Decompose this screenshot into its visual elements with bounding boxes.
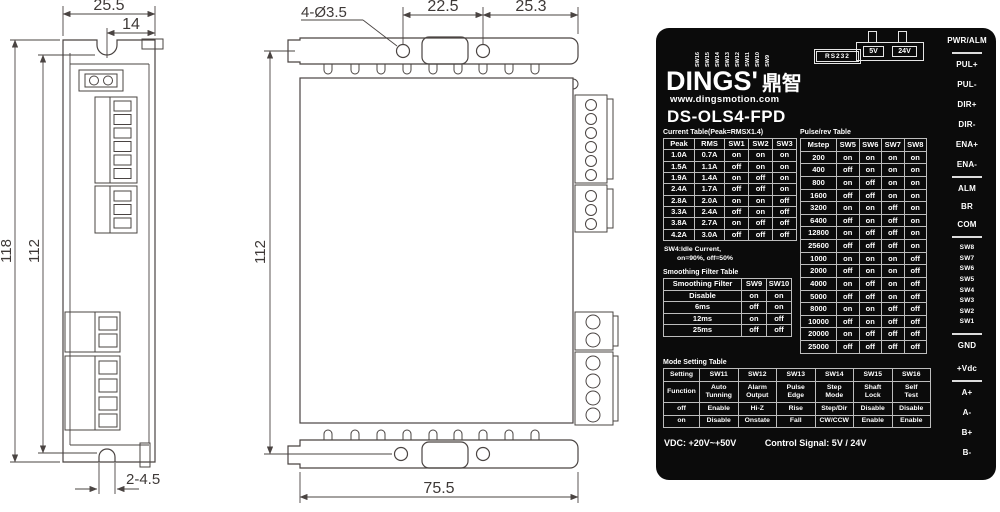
- table-cell: on: [773, 173, 797, 184]
- table-cell: 200: [801, 151, 837, 164]
- table-cell: on: [882, 176, 905, 189]
- table-cell: Mstep: [801, 139, 837, 152]
- table-cell: Function: [664, 382, 700, 403]
- table-cell: off: [904, 303, 927, 316]
- terminal-label: ENA+: [956, 140, 978, 150]
- table-cell: 1600: [801, 189, 837, 202]
- dip-switch-label: SW13: [726, 52, 732, 67]
- table-cell: off: [773, 218, 797, 229]
- table-cell: 25600: [801, 240, 837, 253]
- table-cell: 6ms: [664, 302, 742, 314]
- table-row: offEnableHi-ZRiseStep/DirDisableDisable: [664, 403, 931, 415]
- dim-side-height-label: 112: [252, 240, 269, 264]
- table-row: 2000offononoff: [801, 265, 927, 278]
- table-cell: SW14: [815, 369, 854, 382]
- table-cell: 1000: [801, 252, 837, 265]
- table-cell: 1.7A: [695, 184, 725, 195]
- table-cell: on: [904, 164, 927, 177]
- dip-switch-side-label: SW6: [960, 265, 975, 273]
- table-cell: on: [767, 302, 792, 314]
- table-cell: on: [725, 173, 749, 184]
- table-cell: off: [767, 313, 792, 325]
- power-led-label-group: PWR/ALM: [938, 36, 996, 46]
- table-cell: SW9: [742, 279, 767, 291]
- rs232-text: RS232: [816, 51, 859, 62]
- table-cell: off: [859, 277, 882, 290]
- table-cell: off: [859, 176, 882, 189]
- current-table-block: Current Table(Peak=RMSX1.4) PeakRMSSW1SW…: [663, 129, 797, 241]
- front-view-drawing: 25.5 14 118 112 2-4.5: [0, 0, 235, 512]
- table-cell: SW6: [859, 139, 882, 152]
- table-cell: off: [837, 240, 860, 253]
- table-cell: on: [837, 328, 860, 341]
- table-cell: 25ms: [664, 325, 742, 337]
- table-cell: SW11: [700, 369, 739, 382]
- table-cell: on: [859, 315, 882, 328]
- front-body-outline: [63, 39, 163, 467]
- table-cell: Pulse Edge: [777, 382, 816, 403]
- table-cell: on: [773, 184, 797, 195]
- table-row: FunctionAuto TunningAlarm OutputPulse Ed…: [664, 382, 931, 403]
- table-cell: on: [664, 415, 700, 427]
- table-cell: Disable: [700, 415, 739, 427]
- dim-side-width-label: 75.5: [423, 480, 454, 497]
- table-cell: Onstate: [738, 415, 777, 427]
- table-cell: on: [837, 303, 860, 316]
- table-cell: SW1: [725, 139, 749, 150]
- dip-switch-side-label: SW3: [960, 297, 975, 305]
- table-cell: on: [904, 240, 927, 253]
- table-cell: 2.4A: [664, 184, 695, 195]
- table-cell: Disable: [854, 403, 893, 415]
- table-cell: on: [742, 313, 767, 325]
- side-view-drawing: 4-Ø3.5 22.5 25.3 112 75.5: [235, 0, 655, 512]
- table-cell: on: [837, 151, 860, 164]
- table-row: Smoothing FilterSW9SW10: [664, 279, 792, 291]
- table-cell: SW7: [882, 139, 905, 152]
- table-cell: on: [859, 202, 882, 215]
- table-cell: off: [742, 302, 767, 314]
- terminal-label: PUL-: [957, 80, 976, 90]
- table-cell: off: [749, 218, 773, 229]
- table-cell: off: [859, 240, 882, 253]
- table-cell: off: [773, 229, 797, 240]
- dip-switch-label: SW14: [716, 52, 722, 67]
- control-terminal-group: PUL+PUL-DIR+DIR-ENA+ENA-: [938, 60, 996, 170]
- table-cell: off: [882, 240, 905, 253]
- table-cell: on: [725, 150, 749, 161]
- table-cell: off: [882, 328, 905, 341]
- table-cell: Disable: [892, 403, 931, 415]
- table-cell: off: [837, 214, 860, 227]
- terminal-label: ENA-: [957, 160, 977, 170]
- table-cell: off: [859, 328, 882, 341]
- table-cell: 3.8A: [664, 218, 695, 229]
- table-cell: SW8: [904, 139, 927, 152]
- pulse-table-title: Pulse/rev Table: [800, 129, 927, 136]
- table-row: 1600offoffonon: [801, 189, 927, 202]
- terminal-label: DIR+: [957, 100, 976, 110]
- table-cell: Shaft Lock: [854, 382, 893, 403]
- table-row: 1.0A0.7Aononon: [664, 150, 797, 161]
- table-cell: Enable: [892, 415, 931, 427]
- rs232-port-label: RS232: [814, 49, 861, 64]
- table-cell: off: [725, 229, 749, 240]
- model-number: DS-OLS4-FPD: [667, 107, 786, 127]
- mode-table-title: Mode Setting Table: [663, 359, 931, 366]
- table-row: 3.8A2.7Aonoffoff: [664, 218, 797, 229]
- dip-switch-labels: SW16SW15SW14SW13SW12SW11SW10SW9: [696, 35, 772, 67]
- power-spec-footer: VDC: +20V~+50V Control Signal: 5V / 24V: [664, 438, 892, 448]
- table-row: 25msoffoff: [664, 325, 792, 337]
- table-cell: on: [725, 218, 749, 229]
- table-cell: off: [725, 184, 749, 195]
- table-cell: Hi-Z: [738, 403, 777, 415]
- table-cell: on: [773, 150, 797, 161]
- table-cell: 4.2A: [664, 229, 695, 240]
- table-cell: on: [904, 151, 927, 164]
- table-row: 10000offonoffoff: [801, 315, 927, 328]
- table-cell: off: [882, 202, 905, 215]
- motor-terminal-group: A+A-B+B-: [938, 388, 996, 458]
- table-cell: off: [664, 403, 700, 415]
- table-row: 5000offoffonoff: [801, 290, 927, 303]
- table-cell: 5000: [801, 290, 837, 303]
- table-cell: on: [749, 195, 773, 206]
- terminal-label: A+: [962, 388, 973, 398]
- smoothing-table-title: Smoothing Filter Table: [663, 269, 792, 276]
- terminal-label: GND: [958, 341, 976, 351]
- brand-name: DINGS': [666, 66, 758, 97]
- table-cell: on: [882, 164, 905, 177]
- table-row: 200onononon: [801, 151, 927, 164]
- table-cell: SW12: [738, 369, 777, 382]
- table-cell: 10000: [801, 315, 837, 328]
- terminal-label: B-: [963, 448, 972, 458]
- table-row: 6400offonoffon: [801, 214, 927, 227]
- side-body-outline: [288, 37, 578, 468]
- table-cell: 3200: [801, 202, 837, 215]
- terminal-label: ALM: [958, 184, 976, 194]
- table-cell: on: [749, 207, 773, 218]
- divider: [952, 380, 982, 382]
- table-cell: Self Test: [892, 382, 931, 403]
- table-cell: SW5: [837, 139, 860, 152]
- table-cell: on: [749, 161, 773, 172]
- dim-height-inner-label: 112: [26, 239, 43, 263]
- table-cell: on: [859, 164, 882, 177]
- table-row: 25600offoffoffon: [801, 240, 927, 253]
- signal-voltage-jumper: 5V 24V: [856, 31, 924, 61]
- table-cell: RMS: [695, 139, 725, 150]
- dip-switch-side-label: SW1: [960, 318, 975, 326]
- terminal-label: COM: [957, 220, 976, 230]
- brand-logo: DINGS' 鼎智: [666, 66, 802, 97]
- table-cell: on: [859, 303, 882, 316]
- table-cell: Auto Tunning: [700, 382, 739, 403]
- table-cell: off: [749, 173, 773, 184]
- idle-current-note: SW4:Idle Current, on=90%, off=50%: [664, 245, 733, 263]
- dip-switch-side-label: SW5: [960, 276, 975, 284]
- table-cell: off: [749, 229, 773, 240]
- table-cell: off: [882, 315, 905, 328]
- table-cell: on: [882, 277, 905, 290]
- dim-notch-label: 14: [122, 16, 140, 33]
- table-cell: 1.5A: [664, 161, 695, 172]
- table-cell: 12800: [801, 227, 837, 240]
- supply-terminal-group: GND+Vdc: [938, 341, 996, 374]
- terminal-label: PWR/ALM: [947, 36, 987, 46]
- table-row: 1.9A1.4Aonoffon: [664, 173, 797, 184]
- table-row: 6msoffon: [664, 302, 792, 314]
- table-cell: off: [882, 341, 905, 354]
- table-cell: 20000: [801, 328, 837, 341]
- current-table-title: Current Table(Peak=RMSX1.4): [663, 129, 797, 136]
- table-cell: 25000: [801, 341, 837, 354]
- dip-switch-label: SW10: [756, 52, 762, 67]
- table-row: onDisableOnstateFallCW/CCWEnableEnable: [664, 415, 931, 427]
- table-cell: 1.9A: [664, 173, 695, 184]
- table-cell: SW13: [777, 369, 816, 382]
- table-cell: 3.3A: [664, 207, 695, 218]
- dim-height-outer-label: 118: [0, 239, 15, 263]
- table-row: MstepSW5SW6SW7SW8: [801, 139, 927, 152]
- table-cell: off: [742, 325, 767, 337]
- table-cell: off: [859, 189, 882, 202]
- divider: [952, 52, 982, 54]
- table-cell: 6400: [801, 214, 837, 227]
- dip-switch-side-label: SW2: [960, 308, 975, 316]
- table-cell: on: [773, 161, 797, 172]
- table-cell: 2.7A: [695, 218, 725, 229]
- table-cell: on: [904, 202, 927, 215]
- table-cell: CW/CCW: [815, 415, 854, 427]
- table-cell: off: [904, 265, 927, 278]
- table-cell: 2.0A: [695, 195, 725, 206]
- table-row: 12msonoff: [664, 313, 792, 325]
- table-cell: Fall: [777, 415, 816, 427]
- table-cell: off: [773, 207, 797, 218]
- dim-slot-label: 2-4.5: [126, 471, 160, 488]
- dip-switch-side-label: SW7: [960, 255, 975, 263]
- side-connectors: [575, 95, 618, 425]
- mode-table-block: Mode Setting Table SettingSW11SW12SW13SW…: [663, 359, 931, 428]
- dim-holes-label: 4-Ø3.5: [301, 4, 347, 21]
- table-cell: on: [882, 252, 905, 265]
- table-row: 400offononon: [801, 164, 927, 177]
- table-cell: 2.8A: [664, 195, 695, 206]
- table-cell: off: [904, 341, 927, 354]
- table-cell: 400: [801, 164, 837, 177]
- table-cell: Setting: [664, 369, 700, 382]
- divider: [952, 333, 982, 335]
- table-cell: on: [859, 151, 882, 164]
- table-row: SettingSW11SW12SW13SW14SW15SW16: [664, 369, 931, 382]
- table-cell: on: [859, 252, 882, 265]
- table-cell: on: [837, 176, 860, 189]
- dim-hole-spacing-label: 22.5: [427, 0, 458, 15]
- table-cell: 800: [801, 176, 837, 189]
- table-cell: on: [837, 227, 860, 240]
- table-cell: Smoothing Filter: [664, 279, 742, 291]
- brand-website: www.dingsmotion.com: [670, 94, 779, 105]
- table-cell: 2000: [801, 265, 837, 278]
- table-cell: 4000: [801, 277, 837, 290]
- table-cell: on: [882, 151, 905, 164]
- table-cell: off: [859, 227, 882, 240]
- table-cell: on: [767, 290, 792, 302]
- table-row: 25000offoffoffoff: [801, 341, 927, 354]
- table-cell: SW10: [767, 279, 792, 291]
- table-cell: off: [837, 290, 860, 303]
- table-cell: Enable: [854, 415, 893, 427]
- table-cell: Peak: [664, 139, 695, 150]
- table-cell: Step Mode: [815, 382, 854, 403]
- current-table: PeakRMSSW1SW2SW31.0A0.7Aononon1.5A1.1Aof…: [663, 138, 797, 241]
- table-cell: off: [904, 290, 927, 303]
- dip-switch-label: SW16: [696, 52, 702, 67]
- table-row: 20000onoffoffoff: [801, 328, 927, 341]
- table-cell: 8000: [801, 303, 837, 316]
- table-row: PeakRMSSW1SW2SW3: [664, 139, 797, 150]
- table-cell: off: [725, 161, 749, 172]
- terminal-label: B+: [962, 428, 973, 438]
- dim-edge-offset-label: 25.3: [515, 0, 546, 15]
- table-cell: 1.0A: [664, 150, 695, 161]
- side-vent-tabs: [324, 64, 539, 440]
- front-connectors: [65, 70, 137, 430]
- divider: [952, 236, 982, 238]
- dip-switch-side-label: SW4: [960, 287, 975, 295]
- table-cell: SW2: [749, 139, 773, 150]
- side-dimensions: [264, 7, 578, 503]
- table-cell: Disable: [664, 290, 742, 302]
- table-cell: off: [773, 195, 797, 206]
- datasheet-page: 25.5 14 118 112 2-4.5: [0, 0, 1000, 512]
- terminal-labels-column: PWR/ALM PUL+PUL-DIR+DIR-ENA+ENA- ALMBRCO…: [938, 28, 996, 458]
- table-cell: on: [837, 277, 860, 290]
- smoothing-filter-table: Smoothing FilterSW9SW10Disableonon6msoff…: [663, 278, 792, 337]
- terminal-label: +Vdc: [957, 364, 977, 374]
- dip-switch-label: SW12: [736, 52, 742, 67]
- driver-label-panel: SW16SW15SW14SW13SW12SW11SW10SW9 RS232 5V…: [656, 28, 996, 480]
- table-cell: off: [837, 164, 860, 177]
- table-cell: on: [882, 189, 905, 202]
- brand-name-chinese: 鼎智: [762, 67, 802, 96]
- table-cell: off: [882, 214, 905, 227]
- divider: [952, 176, 982, 178]
- table-cell: off: [859, 341, 882, 354]
- table-cell: Step/Dir: [815, 403, 854, 415]
- table-row: 3.3A2.4Aoffonoff: [664, 207, 797, 218]
- dim-width-label: 25.5: [93, 0, 124, 14]
- table-cell: on: [904, 227, 927, 240]
- table-cell: on: [859, 214, 882, 227]
- front-dimension-labels: 25.5 14 118 112 2-4.5: [0, 0, 160, 488]
- pulse-table-block: Pulse/rev Table MstepSW5SW6SW7SW8200onon…: [800, 129, 927, 354]
- table-cell: on: [725, 195, 749, 206]
- table-row: 1.5A1.1Aoffonon: [664, 161, 797, 172]
- terminal-label: PUL+: [956, 60, 977, 70]
- table-row: Disableonon: [664, 290, 792, 302]
- vdc-spec: VDC: +20V~+50V: [664, 438, 736, 448]
- table-cell: off: [749, 184, 773, 195]
- terminal-label: A-: [963, 408, 972, 418]
- table-cell: Rise: [777, 403, 816, 415]
- jumper-24v-label: 24V: [892, 46, 916, 57]
- table-cell: on: [837, 202, 860, 215]
- dip-switch-label: SW11: [746, 52, 752, 67]
- table-cell: off: [904, 328, 927, 341]
- pulse-rev-table: MstepSW5SW6SW7SW8200onononon400offononon…: [800, 138, 927, 354]
- table-cell: SW16: [892, 369, 931, 382]
- table-cell: off: [837, 189, 860, 202]
- terminal-label: DIR-: [958, 120, 975, 130]
- table-row: 2.8A2.0Aononoff: [664, 195, 797, 206]
- terminal-label: BR: [961, 202, 973, 212]
- table-row: 8000ononoffoff: [801, 303, 927, 316]
- dip-switch-label: SW15: [706, 52, 712, 67]
- table-cell: off: [904, 315, 927, 328]
- table-row: 4.2A3.0Aoffoffoff: [664, 229, 797, 240]
- table-cell: on: [749, 150, 773, 161]
- table-row: 800onoffonon: [801, 176, 927, 189]
- dip-switch-side-label: SW8: [960, 244, 975, 252]
- table-cell: 0.7A: [695, 150, 725, 161]
- table-row: 1000onononoff: [801, 252, 927, 265]
- control-signal-spec: Control Signal: 5V / 24V: [765, 438, 867, 448]
- table-cell: off: [725, 207, 749, 218]
- jumper-box: 5V 24V: [856, 42, 924, 61]
- mode-setting-table: SettingSW11SW12SW13SW14SW15SW16FunctionA…: [663, 368, 931, 428]
- jumper-5v-label: 5V: [863, 46, 884, 57]
- status-terminal-group: ALMBRCOM: [938, 184, 996, 230]
- table-cell: off: [837, 341, 860, 354]
- table-cell: 2.4A: [695, 207, 725, 218]
- table-cell: off: [837, 315, 860, 328]
- table-cell: on: [859, 265, 882, 278]
- table-cell: on: [742, 290, 767, 302]
- smoothing-table-block: Smoothing Filter Table Smoothing FilterS…: [663, 269, 792, 337]
- table-cell: 12ms: [664, 313, 742, 325]
- table-cell: SW15: [854, 369, 893, 382]
- table-cell: on: [837, 252, 860, 265]
- table-row: 2.4A1.7Aoffoffon: [664, 184, 797, 195]
- table-cell: off: [882, 303, 905, 316]
- idle-current-note-line1: SW4:Idle Current,: [664, 245, 733, 254]
- table-cell: Enable: [700, 403, 739, 415]
- table-row: 12800onoffoffon: [801, 227, 927, 240]
- table-cell: off: [767, 325, 792, 337]
- table-cell: on: [904, 189, 927, 202]
- table-cell: on: [882, 290, 905, 303]
- table-cell: off: [859, 290, 882, 303]
- idle-current-note-line2: on=90%, off=50%: [677, 254, 733, 263]
- table-cell: 1.1A: [695, 161, 725, 172]
- table-cell: on: [904, 214, 927, 227]
- table-cell: 3.0A: [695, 229, 725, 240]
- table-row: 3200ononoffon: [801, 202, 927, 215]
- table-cell: 1.4A: [695, 173, 725, 184]
- table-cell: off: [904, 252, 927, 265]
- table-row: 4000onoffonoff: [801, 277, 927, 290]
- table-cell: Alarm Output: [738, 382, 777, 403]
- table-cell: on: [904, 176, 927, 189]
- table-cell: on: [882, 265, 905, 278]
- dip-switch-side-group: SW8SW7SW6SW5SW4SW3SW2SW1: [938, 244, 996, 327]
- table-cell: off: [882, 227, 905, 240]
- table-cell: SW3: [773, 139, 797, 150]
